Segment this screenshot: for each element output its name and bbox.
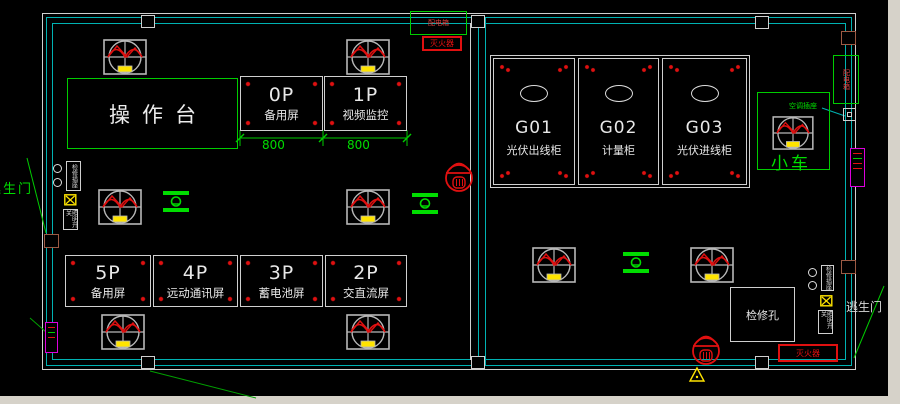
vent-right — [850, 148, 865, 187]
panel-1p-name: 视频监控 — [343, 107, 389, 123]
vent-left — [45, 322, 58, 353]
vent-slat — [853, 163, 862, 164]
dimension-label-1: 800 — [262, 138, 285, 152]
cabinet-g03-id: G03 — [686, 118, 724, 138]
distribution-box-top: 配电箱 — [410, 11, 467, 35]
trolley-label: 小车 — [771, 149, 811, 174]
wall-socket-left-label: 检修插座 — [71, 164, 77, 188]
switch-x-icon — [64, 194, 77, 206]
vent-slat — [48, 337, 55, 338]
panel-4p-name: 远动通讯屏 — [167, 285, 225, 301]
inspection-hatch-label: 检修孔 — [746, 307, 779, 323]
ceiling-fan-icon — [98, 189, 142, 225]
alarm-bell-icon — [690, 330, 722, 366]
emergency-light-icon — [412, 193, 438, 215]
cabinet-g03-name: 光伏进线柜 — [677, 142, 732, 158]
fire-extinguisher-bottom: 灭火器 — [778, 344, 838, 362]
cabinet-g02-name: 计量柜 — [602, 142, 635, 158]
wall-switch-left-label: 照明开关 — [65, 210, 77, 229]
cabinet-g02-id: G02 — [600, 118, 638, 138]
switch-x-icon — [820, 295, 833, 307]
cabinet-g01-name: 光伏出线柜 — [507, 142, 562, 158]
panel-5p-id: 5P — [95, 262, 121, 284]
panel-0p-id: 0P — [269, 84, 295, 106]
cabinet-handle-icon — [520, 85, 548, 102]
inspection-hatch: 检修孔 — [730, 287, 795, 342]
wall-switch-right: 照明开关 — [818, 310, 833, 334]
ac-socket-label: 空调插座 — [789, 103, 817, 110]
cabinet-g01: G01 光伏出线柜 — [493, 58, 575, 185]
wall-switch-left: 照明开关 — [63, 209, 78, 230]
wall-socket-right-label: 检修插座 — [825, 266, 831, 290]
socket-circle-icon — [53, 178, 62, 187]
operator-console: 操作台 — [67, 78, 238, 149]
ceiling-fan-icon — [532, 247, 576, 283]
panel-3p-id: 3P — [269, 262, 295, 284]
ac-socket-box-inner — [847, 112, 852, 117]
ceiling-fan-icon — [346, 39, 390, 75]
distribution-box-right: 配电箱 — [833, 55, 859, 104]
cabinet-g02: G02 计量柜 — [578, 58, 659, 185]
vent-slat — [853, 153, 862, 154]
ceiling-fan-icon — [346, 189, 390, 225]
panel-2p-name: 交直流屏 — [343, 285, 389, 301]
panel-3p-name: 蓄电池屏 — [259, 285, 305, 301]
distribution-box-top-label: 配电箱 — [428, 20, 449, 27]
fire-extinguisher-bottom-label: 灭火器 — [796, 348, 820, 359]
emergency-light-icon — [623, 252, 649, 274]
cabinet-handle-icon — [691, 85, 719, 102]
fire-extinguisher-top: 灭火器 — [422, 36, 462, 51]
ceiling-fan-icon — [103, 39, 147, 75]
panel-3p: 3P 蓄电池屏 — [240, 255, 323, 307]
vent-slat — [853, 168, 862, 169]
vent-slat — [48, 327, 55, 328]
panel-0p-name: 备用屏 — [264, 107, 299, 123]
dimension-label-2: 800 — [347, 138, 370, 152]
fire-extinguisher-top-label: 灭火器 — [430, 38, 454, 49]
vent-slat — [48, 332, 55, 333]
socket-circle-icon — [808, 281, 817, 290]
panel-0p: 0P 备用屏 — [240, 76, 323, 131]
escape-door-left-label: 逃生门 — [0, 178, 33, 197]
ceiling-fan-icon — [772, 116, 814, 150]
cabinet-g01-id: G01 — [515, 118, 553, 138]
panel-2p: 2P 交直流屏 — [325, 255, 407, 307]
socket-circle-icon — [53, 164, 62, 173]
panel-4p: 4P 远动通讯屏 — [153, 255, 238, 307]
escape-door-right-label: 逃生门 — [846, 298, 882, 315]
panel-5p-name: 备用屏 — [91, 285, 126, 301]
socket-circle-icon — [808, 268, 817, 277]
alarm-bell-icon — [443, 157, 475, 193]
emergency-light-icon — [163, 191, 189, 213]
panel-4p-id: 4P — [183, 262, 209, 284]
wall-socket-left: 检修插座 — [66, 161, 81, 191]
panel-2p-id: 2P — [353, 262, 379, 284]
cabinet-handle-icon — [605, 85, 633, 102]
panel-5p: 5P 备用屏 — [65, 255, 151, 307]
panel-1p-id: 1P — [353, 84, 379, 106]
distribution-box-right-label: 配电箱 — [843, 69, 850, 90]
wall-switch-right-label: 照明开关 — [820, 311, 832, 333]
panel-1p: 1P 视频监控 — [324, 76, 407, 131]
cabinet-g03: G03 光伏进线柜 — [662, 58, 747, 185]
ceiling-fan-icon — [690, 247, 734, 283]
wall-socket-right: 检修插座 — [821, 265, 834, 291]
ceiling-fan-icon — [101, 314, 145, 350]
operator-console-label: 操作台 — [97, 99, 208, 129]
floor-plan-canvas: 操作台 0P 备用屏 1P 视频监控 800 800 5P 备用屏 4P 远动通… — [0, 0, 900, 404]
ceiling-fan-icon — [346, 314, 390, 350]
vent-slat — [853, 158, 862, 159]
